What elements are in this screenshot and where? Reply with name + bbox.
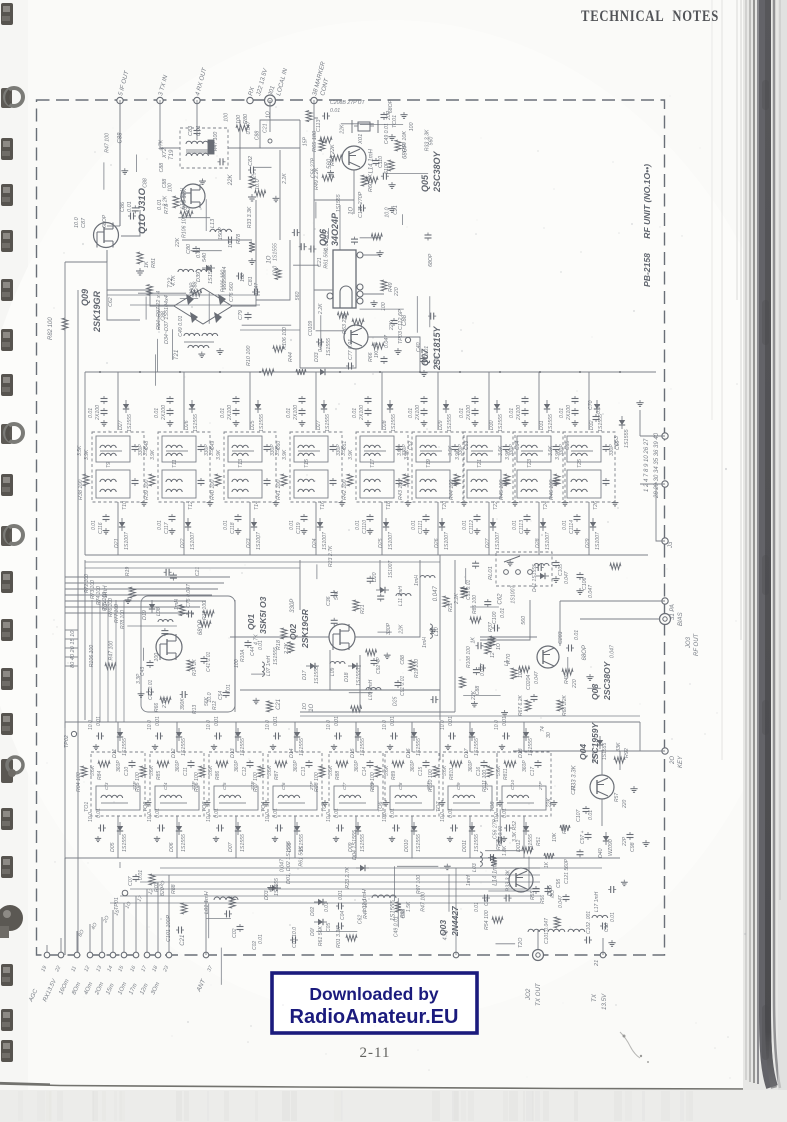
- svg-text:R61 56K: R61 56K: [323, 248, 329, 269]
- svg-text:3.9K: 3.9K: [505, 449, 511, 460]
- svg-text:1S1555: 1S1555: [360, 738, 366, 756]
- svg-text:RL01: RL01: [488, 566, 494, 580]
- svg-text:2O: 2O: [670, 756, 676, 765]
- svg-text:0.01: 0.01: [448, 808, 454, 818]
- svg-text:10.0: 10.0: [273, 266, 279, 276]
- svg-text:R011 100: R011 100: [482, 770, 488, 792]
- svg-text:D28: D28: [535, 538, 541, 548]
- svg-text:C88: C88: [159, 163, 165, 173]
- svg-text:2X100: 2X100: [161, 405, 167, 421]
- svg-text:JO2: JO2: [525, 988, 532, 1001]
- svg-text:C88: C88: [143, 178, 149, 188]
- svg-text:TO2: TO2: [143, 802, 149, 812]
- svg-text:C40: C40: [416, 342, 422, 352]
- svg-text:68OP: 68OP: [388, 99, 394, 113]
- svg-text:1S1007: 1S1007: [256, 531, 262, 550]
- svg-text:1S1007: 1S1007: [388, 531, 394, 550]
- svg-text:C98: C98: [630, 842, 636, 852]
- svg-text:C52: C52: [408, 441, 414, 450]
- svg-text:220: 220: [572, 679, 578, 689]
- svg-text:C17: C17: [530, 767, 536, 776]
- svg-text:1S1007: 1S1007: [595, 531, 601, 550]
- svg-text:30: 30: [546, 732, 552, 738]
- svg-text:C88: C88: [161, 311, 167, 321]
- svg-text:0.047: 0.047: [558, 895, 564, 908]
- svg-text:0.01: 0.01: [390, 808, 396, 818]
- svg-text:3.5K: 3.5K: [77, 445, 83, 456]
- svg-text:C80: C80: [186, 243, 192, 254]
- svg-text:C15: C15: [418, 767, 424, 776]
- svg-text:0.01: 0.01: [96, 808, 102, 818]
- svg-text:R21: R21: [360, 604, 366, 614]
- svg-text:D010: D010: [404, 839, 410, 852]
- svg-text:D33: D33: [314, 352, 320, 362]
- svg-text:10.0: 10.0: [326, 720, 332, 730]
- svg-text:J3: J3: [668, 541, 674, 549]
- svg-text:T20: T20: [442, 501, 448, 510]
- svg-text:D04 1S1555: D04 1S1555: [352, 829, 358, 860]
- svg-text:10.0: 10.0: [147, 812, 153, 822]
- svg-text:1S1555: 1S1555: [193, 414, 199, 432]
- svg-text:10.0: 10.0: [326, 812, 332, 822]
- svg-text:C13: C13: [301, 767, 307, 776]
- svg-text:D16: D16: [406, 748, 412, 758]
- svg-text:1mH: 1mH: [422, 637, 428, 648]
- svg-text:C11: C11: [183, 767, 189, 776]
- svg-text:0.01: 0.01: [390, 716, 396, 726]
- svg-text:R43 100: R43 100: [398, 480, 404, 500]
- svg-text:C10: C10: [124, 767, 130, 776]
- svg-text:1S1007: 1S1007: [190, 531, 196, 550]
- svg-text:C100: C100: [492, 611, 498, 624]
- svg-text:560: 560: [428, 137, 434, 146]
- svg-text:TO1: TO1: [84, 802, 90, 812]
- svg-text:R78: R78: [236, 233, 242, 244]
- svg-text:R82 100: R82 100: [48, 317, 54, 340]
- svg-text:5.6K: 5.6K: [328, 765, 334, 776]
- svg-text:0.01: 0.01: [223, 520, 229, 530]
- svg-text:0.01: 0.01: [91, 520, 97, 530]
- svg-text:3SK5I O3: 3SK5I O3: [258, 596, 268, 634]
- svg-text:0.01: 0.01: [424, 346, 430, 356]
- svg-text:C62: C62: [358, 915, 364, 925]
- svg-text:1S1007: 1S1007: [510, 585, 516, 604]
- svg-text:R47 100: R47 100: [363, 899, 369, 919]
- svg-text:R106 100: R106 100: [221, 270, 227, 293]
- svg-text:80 40 20 15 10: 80 40 20 15 10: [70, 630, 76, 668]
- svg-text:C101 100P: C101 100P: [166, 915, 172, 942]
- svg-text:D25: D25: [324, 230, 330, 242]
- svg-text:C87: C87: [81, 217, 87, 228]
- svg-text:R106 100: R106 100: [182, 215, 188, 238]
- svg-text:C62: C62: [498, 593, 504, 605]
- svg-text:D26: D26: [184, 420, 190, 430]
- svg-text:R61 56K: R61 56K: [299, 846, 305, 867]
- svg-text:5.6K: 5.6K: [442, 765, 448, 776]
- svg-text:C/10: C/10: [510, 780, 516, 790]
- svg-text:3.5K: 3.5K: [548, 445, 554, 456]
- svg-text:R07 100: R07 100: [416, 875, 422, 894]
- svg-text:2X100: 2X100: [516, 405, 522, 421]
- svg-text:3.9K: 3.9K: [404, 449, 410, 460]
- svg-text:R57: R57: [614, 793, 620, 802]
- svg-text:10.0: 10.0: [385, 207, 391, 217]
- svg-text:2X100: 2X100: [293, 405, 299, 421]
- svg-text:R88: R88: [335, 771, 341, 780]
- svg-text:68OP: 68OP: [198, 620, 204, 635]
- svg-text:D25: D25: [547, 884, 553, 896]
- svg-text:C95: C95: [556, 879, 562, 888]
- svg-text:34O24P: 34O24P: [330, 212, 340, 246]
- svg-text:R89: R89: [391, 771, 397, 780]
- svg-text:1S1555: 1S1555: [122, 834, 128, 852]
- svg-text:C92 4P: C92 4P: [376, 657, 382, 674]
- svg-text:R23 2.7K: R23 2.7K: [345, 866, 351, 888]
- svg-text:R87: R87: [274, 771, 280, 780]
- svg-text:560: 560: [295, 292, 301, 301]
- svg-text:3.5K: 3.5K: [275, 445, 281, 456]
- svg-text:1.5K: 1.5K: [406, 901, 412, 912]
- svg-text:R51: R51: [536, 837, 542, 846]
- svg-text:33K: 33K: [616, 742, 622, 752]
- svg-text:R33 3.3K: R33 3.3K: [505, 869, 511, 891]
- svg-text:C1112: C1112: [469, 520, 475, 534]
- svg-text:820: 820: [160, 887, 166, 896]
- svg-text:2SC38OY: 2SC38OY: [432, 150, 442, 193]
- svg-text:T26: T26: [593, 501, 599, 510]
- svg-text:2.2K: 2.2K: [318, 303, 324, 315]
- svg-text:R85 100: R85 100: [472, 595, 478, 614]
- svg-text:R08 100: R08 100: [314, 772, 320, 792]
- svg-text:2-11: 2-11: [360, 1045, 391, 1061]
- svg-text:PB-2158 RF UNIT (NO.1O••): PB-2158 RF UNIT (NO.1O••): [642, 164, 652, 287]
- svg-text:BIAS: BIAS: [678, 612, 684, 626]
- svg-text:1S1555: 1S1555: [474, 738, 480, 756]
- svg-text:28 29 30 34 35 36 39 40: 28 29 30 34 35 36 39 40: [654, 432, 660, 499]
- svg-text:0.01: 0.01: [352, 408, 358, 418]
- svg-text:100: 100: [381, 302, 387, 311]
- svg-text:2.2K: 2.2K: [162, 195, 168, 207]
- svg-text:10.0: 10.0: [440, 812, 446, 822]
- svg-text:1S1555: 1S1555: [272, 243, 278, 261]
- svg-text:5.6K: 5.6K: [496, 765, 502, 776]
- svg-text:0.01: 0.01: [588, 810, 594, 820]
- svg-text:C05: C05: [326, 923, 332, 932]
- svg-text:L07 1mH: L07 1mH: [266, 655, 272, 676]
- svg-text:0.01: 0.01: [286, 408, 292, 418]
- svg-text:1S1555: 1S1555: [416, 738, 422, 756]
- svg-text:TX OUT: TX OUT: [535, 982, 542, 1006]
- svg-text:D0/: D0/: [310, 928, 316, 936]
- svg-text:R108 100: R108 100: [466, 646, 472, 668]
- svg-text:C1114: C1114: [569, 520, 575, 534]
- svg-text:T10: T10: [122, 501, 128, 510]
- svg-text:1K: 1K: [144, 261, 150, 268]
- svg-text:0.01: 0.01: [355, 520, 361, 530]
- svg-text:100: 100: [228, 238, 234, 248]
- svg-text:3.5K: 3.5K: [448, 445, 454, 456]
- svg-text:R54 100: R54 100: [484, 910, 490, 930]
- svg-text:C107: C107: [576, 808, 582, 822]
- svg-text:3.5K: 3.5K: [143, 445, 149, 456]
- svg-text:560: 560: [521, 616, 527, 625]
- svg-text:1S1555: 1S1555: [498, 414, 504, 432]
- svg-text:R56: R56: [540, 895, 546, 904]
- svg-text:0.01: 0.01: [226, 684, 232, 694]
- svg-text:3.5K: 3.5K: [209, 445, 215, 456]
- svg-text:0.01: 0.01: [502, 716, 508, 726]
- svg-text:D25: D25: [252, 172, 258, 182]
- svg-text:0.01: 0.01: [474, 902, 480, 912]
- svg-text:0.01: 0.01: [574, 630, 580, 640]
- svg-text:C1110: C1110: [362, 520, 368, 534]
- svg-text:1S1007: 1S1007: [444, 531, 450, 550]
- svg-text:C0109: C0109: [308, 321, 314, 336]
- svg-text:1S1007: 1S1007: [388, 561, 394, 578]
- svg-text:10.0: 10.0: [206, 720, 212, 730]
- svg-text:Q02: Q02: [288, 624, 298, 640]
- svg-text:1O: 1O: [267, 255, 273, 263]
- svg-text:C91 0.01: C91 0.01: [400, 675, 406, 696]
- svg-text:3.3K R52: 3.3K R52: [512, 821, 518, 842]
- svg-text:0.01: 0.01: [408, 408, 414, 418]
- svg-text:0.01: 0.01: [154, 408, 160, 418]
- svg-text:C75 0.047: C75 0.047: [186, 583, 192, 608]
- svg-text:T18: T18: [386, 501, 392, 510]
- svg-text:0.01: 0.01: [512, 520, 518, 530]
- svg-text:0.047: 0.047: [246, 120, 252, 134]
- svg-text:KEY: KEY: [678, 755, 684, 768]
- svg-text:C36: C36: [326, 596, 332, 606]
- svg-text:D40: D40: [598, 848, 604, 858]
- svg-text:C203: C203: [558, 631, 564, 644]
- svg-text:10.0: 10.0: [88, 720, 94, 730]
- svg-text:1S1555: 1S1555: [181, 738, 187, 756]
- svg-text:0.01: 0.01: [138, 870, 144, 880]
- svg-text:0.01: 0.01: [214, 716, 220, 726]
- svg-text:R04 100: R04 100: [76, 772, 82, 792]
- svg-text:22K: 22K: [547, 798, 553, 809]
- svg-text:0.01: 0.01: [610, 912, 616, 922]
- svg-text:R010 100: R010 100: [428, 769, 434, 792]
- svg-text:330P: 330P: [189, 282, 195, 295]
- svg-text:C121 560P: C121 560P: [564, 858, 570, 884]
- svg-text:15P: 15P: [302, 136, 308, 146]
- svg-text:R67 6.2K: R67 6.2K: [518, 694, 524, 716]
- svg-text:R19 100: R19 100: [414, 659, 420, 678]
- svg-text:C88: C88: [400, 655, 406, 665]
- svg-text:540: 540: [202, 252, 208, 262]
- svg-text:3.9K: 3.9K: [150, 449, 156, 460]
- svg-text:R85: R85: [156, 771, 162, 780]
- svg-text:1S1555: 1S1555: [273, 647, 279, 665]
- svg-text:L09: L09: [330, 667, 336, 676]
- svg-text:R70: R70: [506, 653, 512, 664]
- svg-text:C88: C88: [402, 314, 408, 326]
- svg-text:D13: D13: [230, 748, 236, 758]
- svg-text:10.0: 10.0: [265, 720, 271, 730]
- svg-text:D17: D17: [302, 669, 308, 680]
- svg-text:TC01: TC01: [392, 115, 398, 128]
- svg-text:D18: D18: [344, 672, 350, 682]
- svg-text:R23 2.7K: R23 2.7K: [328, 545, 334, 567]
- svg-text:R40 100: R40 100: [210, 480, 216, 500]
- svg-text:0.01: 0.01: [596, 404, 602, 414]
- svg-text:1S1555: 1S1555: [299, 738, 305, 756]
- svg-text:360P: 360P: [410, 760, 416, 772]
- svg-text:TO8: TO8: [490, 802, 496, 812]
- svg-text:R60 1K: R60 1K: [368, 174, 374, 192]
- svg-text:D15: D15: [350, 748, 356, 758]
- svg-text:10.0: 10.0: [382, 720, 388, 730]
- svg-text:C101 0.047: C101 0.047: [544, 918, 550, 944]
- svg-text:C44: C44: [250, 647, 256, 656]
- svg-text:RF OUT: RF OUT: [694, 632, 700, 656]
- svg-text:1O: 1O: [348, 206, 354, 214]
- svg-text:0.047: 0.047: [280, 858, 286, 872]
- svg-text:1S1555: 1S1555: [127, 414, 133, 432]
- svg-text:RadioAmateur.EU: RadioAmateur.EU: [290, 1006, 459, 1028]
- svg-text:D25: D25: [378, 538, 384, 548]
- svg-text:0.01: 0.01: [562, 520, 568, 530]
- svg-text:Q08: Q08: [590, 684, 600, 700]
- svg-text:C116: C116: [98, 522, 104, 534]
- svg-text:R13: R13: [192, 705, 198, 714]
- svg-text:0.01: 0.01: [330, 108, 340, 114]
- svg-text:2X100: 2X100: [466, 405, 472, 421]
- svg-text:10.0: 10.0: [440, 720, 446, 730]
- svg-text:2SC1959Y: 2SC1959Y: [590, 722, 600, 765]
- svg-text:C21: C21: [393, 205, 399, 215]
- svg-text:Q05: Q05: [420, 174, 430, 192]
- svg-text:D12: D12: [171, 748, 177, 758]
- svg-text:C54: C54: [515, 441, 521, 450]
- svg-text:D25: D25: [393, 696, 399, 706]
- svg-text:4.7K: 4.7K: [254, 634, 260, 645]
- svg-text:T17: T17: [370, 458, 376, 468]
- svg-text:T16: T16: [320, 501, 326, 510]
- svg-text:1S1007: 1S1007: [495, 531, 501, 550]
- svg-text:R84: R84: [97, 771, 103, 780]
- svg-text:1S1555: 1S1555: [240, 738, 246, 756]
- svg-text:D05: D05: [110, 842, 116, 852]
- svg-text:1S1555: 1S1555: [181, 834, 187, 852]
- svg-text:2.7K: 2.7K: [162, 697, 168, 709]
- svg-text:D27: D27: [485, 537, 491, 548]
- svg-text:0.01: 0.01: [459, 408, 465, 418]
- svg-text:C56 27P: C56 27P: [310, 157, 316, 178]
- svg-text:R47 100: R47 100: [213, 132, 219, 152]
- svg-text:Downloaded by: Downloaded by: [309, 984, 439, 1004]
- svg-text:R33 3.3K: R33 3.3K: [571, 764, 577, 790]
- svg-text:D14: D14: [289, 748, 295, 758]
- svg-text:1S1555: 1S1555: [447, 414, 453, 432]
- svg-text:1O: 1O: [266, 111, 272, 118]
- svg-text:1S1555: 1S1555: [360, 834, 366, 852]
- svg-text:0.01: 0.01: [157, 520, 163, 530]
- svg-text:1K: 1K: [471, 637, 477, 644]
- svg-text:3.9K: 3.9K: [282, 449, 288, 460]
- svg-text:100: 100: [409, 122, 415, 131]
- svg-text:1S1555: 1S1555: [325, 414, 331, 432]
- svg-text:D32: D32: [589, 420, 595, 430]
- svg-text:JO3: JO3: [686, 636, 692, 649]
- svg-text:10K: 10K: [552, 832, 558, 842]
- svg-text:C88: C88: [401, 909, 407, 919]
- svg-text:D02: D02: [310, 907, 316, 916]
- svg-text:1S1555: 1S1555: [336, 194, 342, 212]
- svg-text:0.01: 0.01: [220, 408, 226, 418]
- svg-text:T11: T11: [172, 459, 178, 468]
- svg-text:0.01: 0.01: [155, 716, 161, 726]
- svg-text:360P: 360P: [116, 760, 122, 772]
- svg-text:Q01: Q01: [246, 614, 256, 630]
- svg-text:0.01: 0.01: [338, 890, 344, 900]
- svg-text:10.0: 10.0: [147, 720, 153, 730]
- svg-text:TP02: TP02: [64, 735, 70, 748]
- svg-text:D25: D25: [250, 420, 256, 430]
- svg-text:1S1555: 1S1555: [416, 834, 422, 852]
- svg-text:C102 .001: C102 .001: [586, 911, 592, 934]
- svg-text:360P: 360P: [522, 760, 528, 772]
- svg-text:0.01: 0.01: [502, 808, 508, 818]
- svg-text:C14: C14: [362, 767, 368, 776]
- svg-text:3.5K: 3.5K: [498, 445, 504, 456]
- svg-text:R10 100: R10 100: [246, 346, 252, 366]
- svg-text:5.6K: 5.6K: [149, 765, 155, 776]
- svg-text:Q04: Q04: [578, 744, 588, 760]
- svg-text:WZ090: WZ090: [608, 839, 614, 856]
- svg-text:C49 0.01: C49 0.01: [178, 316, 184, 337]
- svg-text:360P: 360P: [234, 760, 240, 772]
- svg-text:1S1555: 1S1555: [314, 666, 320, 684]
- svg-text:C113: C113: [316, 120, 322, 133]
- svg-text:C208B 27P UT: C208B 27P UT: [330, 100, 366, 106]
- svg-text:T12: T12: [188, 501, 194, 510]
- svg-text:TO6: TO6: [378, 802, 384, 812]
- svg-text:C21: C21: [317, 257, 323, 267]
- svg-text:5.6K: 5.6K: [208, 765, 214, 776]
- svg-text:0.01: 0.01: [334, 716, 340, 726]
- svg-text:21: 21: [594, 960, 600, 967]
- svg-text:0.01: 0.01: [324, 902, 330, 912]
- svg-text:3.5K: 3.5K: [341, 445, 347, 456]
- svg-text:C62: C62: [186, 207, 192, 217]
- svg-text:360P: 360P: [468, 760, 474, 772]
- svg-text:560: 560: [327, 158, 333, 169]
- svg-text:360P: 360P: [175, 760, 181, 772]
- svg-text:T13: T13: [238, 459, 244, 468]
- svg-text:T19: T19: [426, 459, 432, 468]
- svg-text:T21: T21: [174, 350, 180, 360]
- svg-text:R39 100: R39 100: [144, 480, 150, 500]
- svg-text:C77 0.01: C77 0.01: [348, 339, 354, 360]
- svg-text:2X100: 2X100: [415, 405, 421, 421]
- svg-text:0.01: 0.01: [96, 716, 102, 726]
- svg-text:T25: T25: [577, 459, 583, 468]
- svg-text:TP01: TP01: [114, 897, 120, 910]
- svg-text:R92: R92: [624, 748, 630, 758]
- svg-text:5.6K: 5.6K: [384, 765, 390, 776]
- svg-text:R45: R45: [434, 355, 440, 366]
- svg-text:C78: C78: [374, 342, 380, 352]
- svg-text:360P: 360P: [354, 760, 360, 772]
- svg-text:C86: C86: [120, 201, 126, 212]
- svg-text:TECHNICAL NOTES: TECHNICAL NOTES: [581, 8, 719, 25]
- svg-text:D39: D39: [196, 272, 202, 282]
- svg-text:D53: D53: [614, 436, 620, 446]
- svg-text:C76 560: C76 560: [229, 282, 235, 302]
